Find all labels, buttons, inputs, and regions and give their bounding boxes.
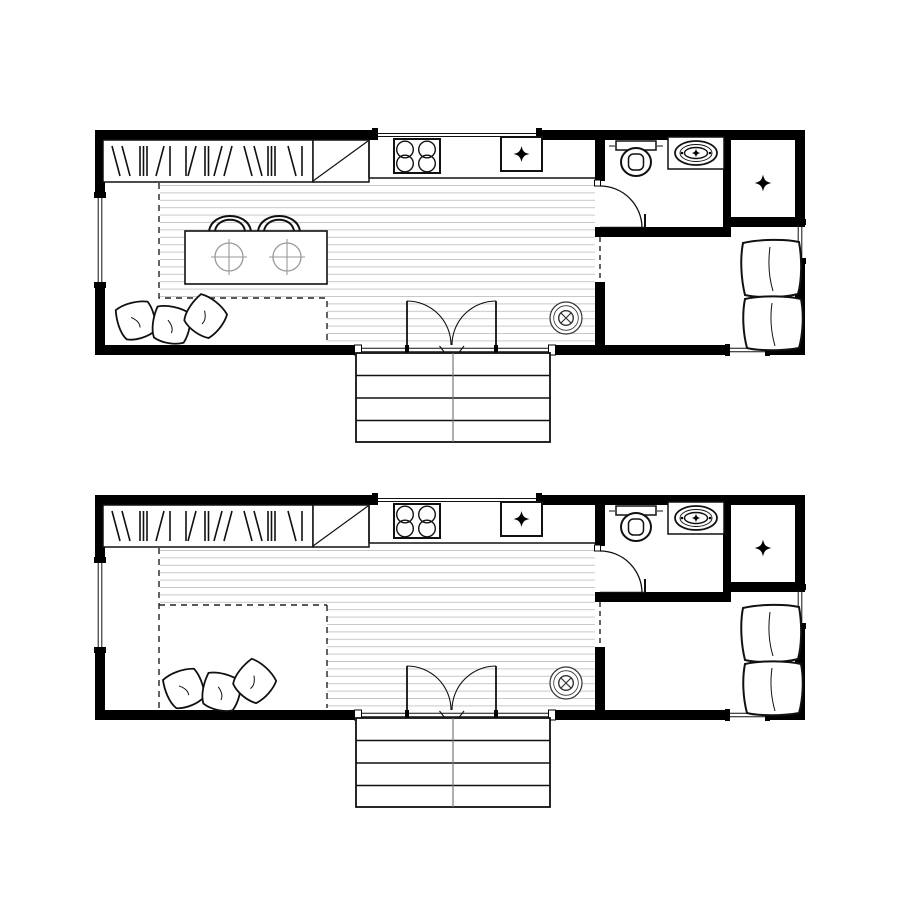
floor-cushion-1 bbox=[161, 665, 208, 712]
floor-cushion-1 bbox=[114, 298, 159, 343]
floor-plan-upper bbox=[94, 128, 806, 442]
floor-plans-canvas bbox=[0, 0, 900, 900]
floor-plan-lower bbox=[94, 493, 806, 807]
dining-table bbox=[185, 231, 327, 284]
flooring-band bbox=[160, 550, 595, 605]
